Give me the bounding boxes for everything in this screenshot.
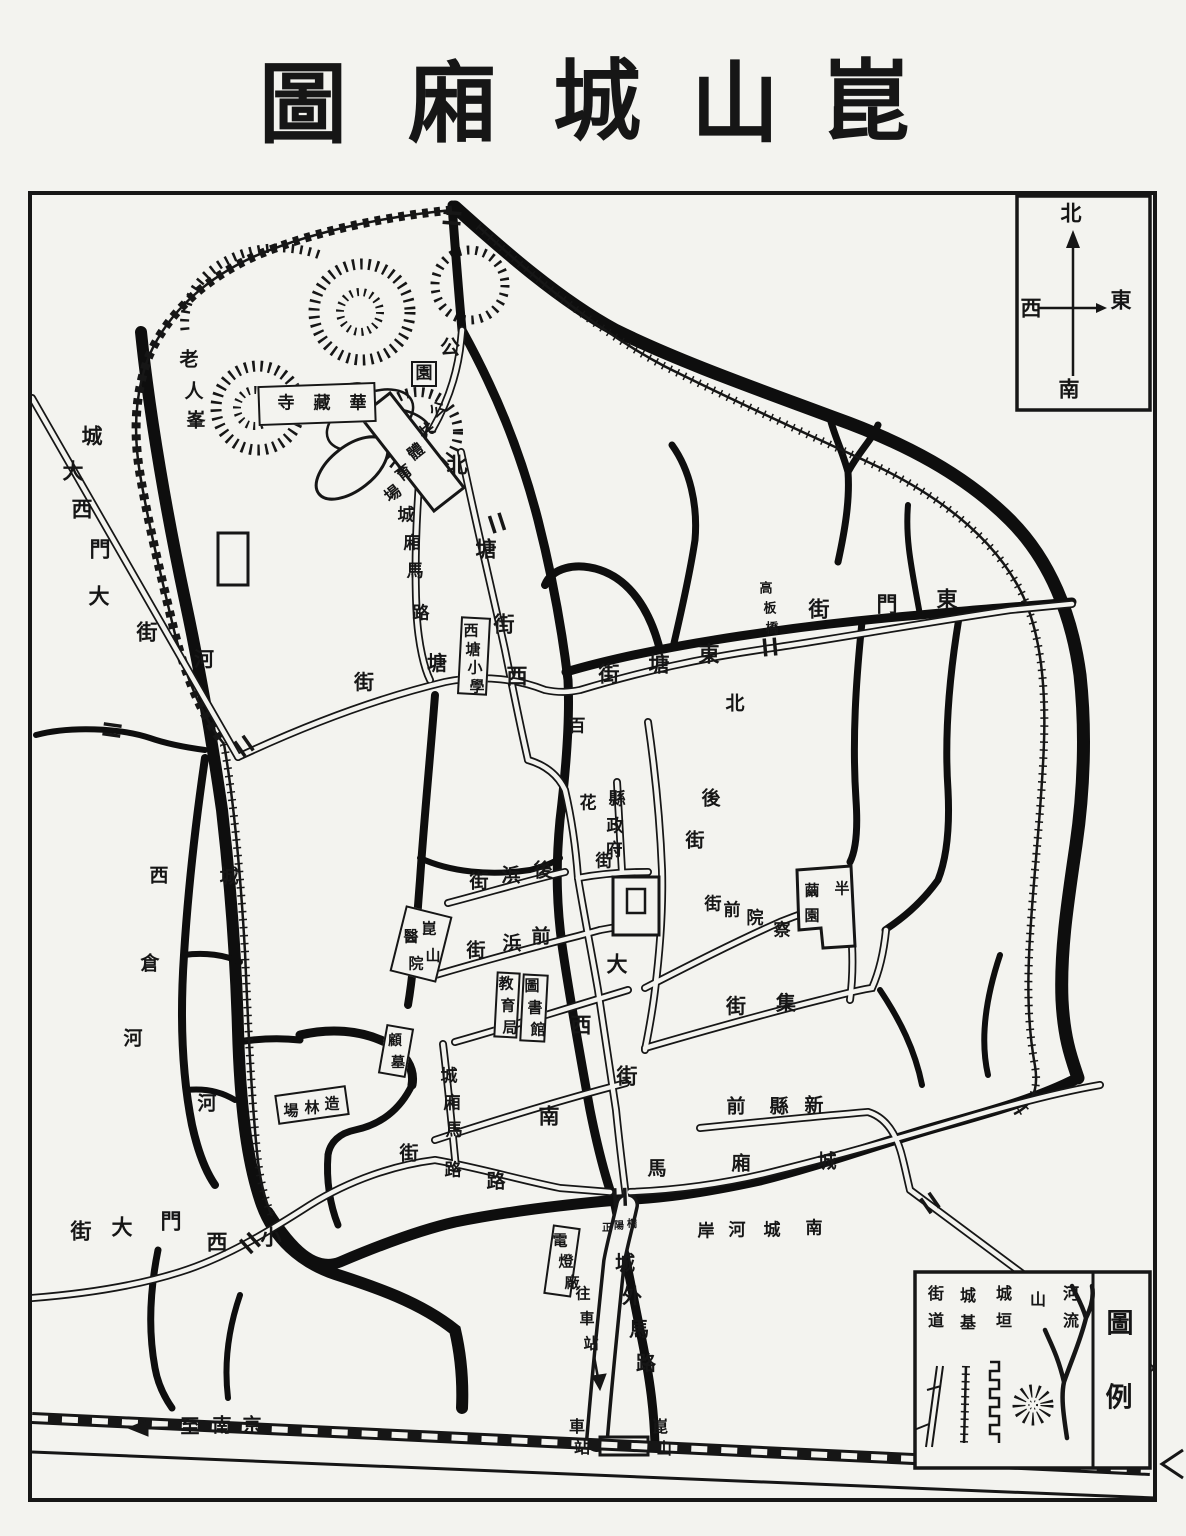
county-government-char-1: 政: [607, 819, 624, 836]
compass-south-char-0: 南: [1059, 379, 1080, 400]
north-back-street-char-2: 街: [685, 832, 704, 851]
south-moat-bank-char-3: 岸: [698, 1224, 715, 1241]
north-tang-street-char-2: 街: [494, 614, 515, 635]
xitang-primary-school-char-3: 學: [469, 680, 484, 695]
houbang-street-char-2: 街: [469, 873, 488, 892]
map-title-char-1: 廂: [408, 59, 496, 147]
compass-west-char-0: 西: [1021, 298, 1042, 319]
station-label-char-1: 站: [574, 1440, 590, 1456]
park-gong-char-0: 公: [440, 337, 460, 357]
ring-road-west-char-0: 城: [441, 1069, 458, 1086]
wall-label-northwest-char-0: 城: [82, 426, 103, 447]
old-man-peak-char-2: 峯: [186, 412, 205, 431]
xitang-primary-school-char-0: 西: [463, 624, 478, 639]
gaoban-bridge-char-1: 板: [763, 603, 776, 616]
banjian-garden-char-0: 半: [834, 882, 849, 897]
ring-road-south-char-2: 馬: [647, 1160, 666, 1179]
great-west-gate-street-char-4: 街: [137, 622, 158, 643]
to-station-label-char-0: 往: [575, 1287, 590, 1302]
ring-road-south-char-0: 城: [817, 1153, 836, 1172]
banjian-garden-char-2: 園: [804, 909, 819, 924]
new-county-front-char-1: 縣: [769, 1098, 788, 1117]
outside-city-road-char-2: 馬: [629, 1319, 649, 1339]
houbang-street-char-0: 後: [533, 862, 552, 881]
qianbang-street-char-1: 浜: [502, 935, 521, 954]
legend-item-river-char-1: 流: [1063, 1313, 1079, 1329]
electric-light-plant-char-0: 電: [552, 1234, 567, 1249]
forestry-ground-char-1: 林: [304, 1101, 319, 1116]
ji-street-char-1: 街: [726, 996, 746, 1016]
to-station-label-char-2: 站: [583, 1337, 598, 1352]
kunshan-hospital-char-2: 醫: [403, 930, 418, 945]
to-nanjing-char-1: 南: [212, 1417, 231, 1436]
north-back-street-char-0: 北: [725, 695, 744, 714]
great-west-street-char-0: 大: [607, 954, 628, 975]
great-west-street-char-2: 街: [617, 1066, 638, 1087]
north-back-street-char-1: 後: [701, 790, 720, 809]
new-county-front-char-0: 新: [804, 1097, 823, 1116]
legend-item-river-char-0: 河: [1063, 1286, 1079, 1302]
kunshan-city-map: 崑山城廂圖: [0, 0, 1186, 1536]
library-char-0: 圖: [524, 979, 539, 994]
ring-road-west-char-1: 廂: [444, 1096, 461, 1113]
map-title-char-2: 城: [553, 57, 641, 145]
south-moat-bank-char-1: 城: [764, 1223, 781, 1240]
west-tang-char-char-0: 西: [507, 666, 528, 687]
houbang-street-char-1: 浜: [501, 867, 520, 886]
education-bureau-char-2: 局: [502, 1021, 517, 1036]
gu-tomb-char-0: 顧: [388, 1034, 402, 1048]
outside-city-road-char-3: 路: [636, 1353, 656, 1373]
moat-cheng-west-char-0: 城: [219, 868, 238, 887]
east-tang-street-char-0: 東: [699, 644, 720, 665]
moat-river-label-nw-char-0: 河: [194, 649, 214, 669]
legend-item-wall-char-0: 城: [996, 1286, 1012, 1302]
gu-tomb-char-1: 墓: [391, 1056, 405, 1070]
great-west-gate-street-char-0: 大: [63, 461, 84, 482]
ring-road-south-char-1: 廂: [731, 1155, 750, 1174]
map-labels-layer: 圖廂城山崑北南西東圖例河流山城垣城基街道老人峯寺藏華公園公共體育場北塘街西城廂馬…: [0, 0, 1186, 1536]
qianbang-street-char-0: 前: [531, 928, 550, 947]
legend-item-mountain-char-0: 山: [1030, 1292, 1046, 1308]
new-county-front-char-2: 前: [726, 1098, 745, 1117]
legend-item-street-char-1: 道: [928, 1313, 944, 1329]
zhengyang-bridge-char-1: 陽: [614, 1222, 624, 1232]
to-nanjing-char-2: 京: [242, 1417, 261, 1436]
huazang-temple-char-0: 寺: [278, 396, 295, 413]
map-title-char-0: 圖: [259, 60, 347, 148]
chayuan-front-street-char-1: 院: [747, 911, 764, 928]
chayuan-front-street-char-3: 街: [705, 897, 722, 914]
small-west-gate-street-char-1: 西: [207, 1232, 228, 1253]
legend-item-street-char-0: 街: [928, 1286, 944, 1302]
kunshan-hospital-char-0: 崑: [421, 922, 436, 937]
great-west-street-char-1: 西: [571, 1015, 592, 1036]
east-tang-street-char-2: 街: [599, 664, 620, 685]
outside-city-road-char-0: 城: [615, 1253, 635, 1273]
banjian-garden-char-1: 繭: [804, 884, 819, 899]
public-sports-ground-char-0: 公: [427, 399, 449, 421]
ring-road-northwest-char-2: 馬: [407, 564, 424, 581]
legend-item-base-char-1: 基: [960, 1315, 976, 1331]
education-bureau-char-1: 育: [500, 999, 515, 1014]
chayuan-front-street-char-2: 前: [724, 903, 741, 920]
west-granary-river-char-1: 倉: [140, 955, 159, 974]
qianbang-street-char-2: 街: [466, 942, 485, 961]
forestry-ground-char-2: 場: [283, 1104, 298, 1119]
south-street-char-char-0: 南: [539, 1106, 560, 1127]
great-west-gate-street-char-3: 大: [89, 586, 110, 607]
legend-title-char-0: 圖: [1107, 1311, 1134, 1338]
ring-road-west-char-2: 馬: [446, 1123, 463, 1140]
street-char-sw-char-0: 街: [399, 1145, 418, 1164]
forestry-ground-char-0: 造: [324, 1097, 339, 1112]
outside-city-road-char-1: 外: [622, 1286, 642, 1306]
to-station-label-char-1: 車: [579, 1312, 594, 1327]
public-sports-ground-char-1: 共: [416, 420, 438, 442]
east-gate-street-char-0: 東: [937, 589, 958, 610]
south-moat-bank-char-0: 南: [806, 1221, 823, 1238]
compass-east-char-0: 東: [1111, 290, 1132, 311]
south-moat-bank-char-2: 河: [729, 1223, 746, 1240]
small-west-gate-street-char-0: 小: [261, 1227, 282, 1248]
xitang-primary-school-char-1: 塘: [465, 643, 480, 658]
map-title-char-3: 山: [691, 59, 779, 147]
great-west-gate-street-char-1: 西: [72, 499, 93, 520]
electric-light-plant-char-1: 燈: [558, 1255, 573, 1270]
ring-road-west-char-3: 路: [445, 1163, 462, 1180]
legend-item-wall-char-1: 垣: [996, 1313, 1012, 1329]
kunshan-station-label-char-1: 山: [656, 1441, 672, 1457]
east-gate-street-char-1: 門: [877, 594, 898, 615]
xitang-primary-school-char-2: 小: [467, 661, 482, 676]
huazang-temple-char-2: 華: [350, 396, 367, 413]
west-granary-river-char-2: 河: [123, 1030, 142, 1049]
gaoban-bridge-char-2: 橋: [765, 623, 778, 636]
library-char-2: 館: [530, 1023, 545, 1038]
county-government-char-0: 縣: [609, 792, 626, 809]
kunshan-station-label-char-0: 崑: [652, 1419, 668, 1435]
ring-road-northwest-char-3: 路: [413, 606, 430, 623]
park-yuan-char-0: 園: [416, 366, 433, 383]
baihua-street-char-1: 花: [580, 796, 597, 813]
north-tang-street-char-0: 北: [447, 455, 468, 476]
education-bureau-char-0: 教: [498, 977, 513, 992]
gaoban-bridge-char-0: 高: [759, 583, 772, 596]
kunshan-hospital-char-1: 山: [425, 949, 440, 964]
public-sports-ground-char-2: 體: [405, 441, 427, 463]
small-west-gate-street-char-3: 大: [112, 1217, 133, 1238]
moat-he-southwest-char-0: 河: [197, 1095, 216, 1114]
public-sports-ground-char-3: 育: [393, 462, 415, 484]
tang-street-char-1: 街: [354, 672, 374, 692]
map-title-char-4: 崑: [822, 57, 910, 145]
baihua-street-char-0: 百: [569, 719, 586, 736]
great-west-gate-street-char-2: 門: [90, 539, 111, 560]
legend-item-base-char-0: 城: [960, 1288, 976, 1304]
public-sports-ground-char-4: 場: [382, 483, 404, 505]
chayuan-front-street-char-0: 察: [774, 923, 791, 940]
station-label-char-0: 車: [569, 1419, 585, 1435]
to-nanjing-char-0: 至: [180, 1418, 199, 1437]
west-granary-river-char-0: 西: [149, 867, 168, 886]
zhengyang-bridge-char-2: 橋: [627, 1220, 637, 1230]
east-gate-street-char-2: 街: [809, 599, 830, 620]
east-tang-street-char-1: 塘: [649, 654, 670, 675]
small-west-gate-street-char-2: 門: [161, 1211, 182, 1232]
kunshan-hospital-char-3: 院: [408, 957, 423, 972]
old-man-peak-char-0: 老: [179, 351, 198, 370]
county-government-char-2: 府: [606, 843, 623, 860]
zhengyang-bridge-char-0: 正: [602, 1224, 612, 1234]
north-tang-street-char-1: 塘: [476, 539, 497, 560]
library-char-1: 書: [527, 1001, 542, 1016]
ring-road-northwest-char-1: 廂: [404, 536, 421, 553]
tang-street-char-0: 塘: [427, 653, 447, 673]
compass-north-char-0: 北: [1061, 203, 1082, 224]
huazang-temple-char-1: 藏: [314, 396, 331, 413]
ring-road-south-char-3: 路: [486, 1173, 505, 1192]
old-man-peak-char-1: 人: [184, 383, 203, 402]
legend-title-char-1: 例: [1106, 1385, 1133, 1412]
ring-road-northwest-char-0: 城: [398, 508, 415, 525]
ji-street-char-0: 集: [776, 993, 796, 1013]
small-west-gate-street-char-4: 街: [71, 1221, 92, 1242]
